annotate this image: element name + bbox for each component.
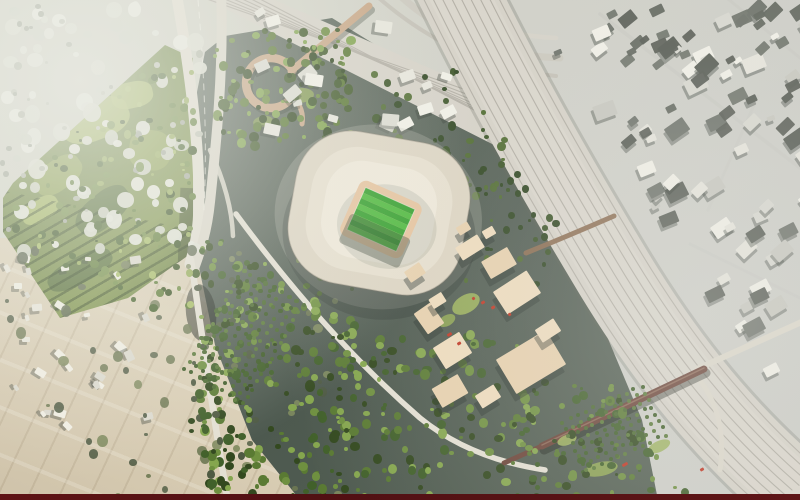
aerial-masterplan-image (0, 0, 800, 500)
stadium-layer (0, 0, 800, 500)
stadium (258, 108, 497, 335)
red-border-strip (0, 494, 800, 500)
